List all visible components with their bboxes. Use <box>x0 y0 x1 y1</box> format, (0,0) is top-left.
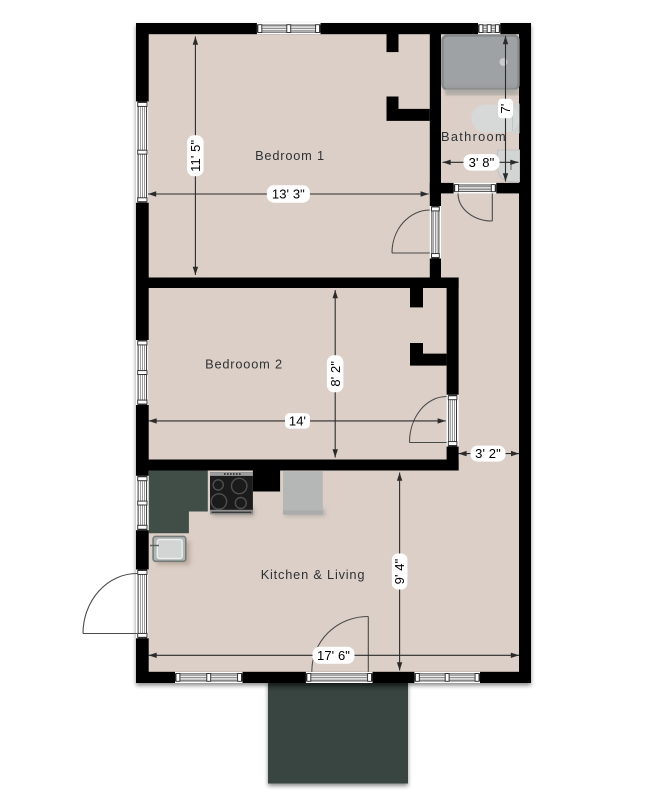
svg-text:7': 7' <box>498 104 513 114</box>
svg-text:Bathroom: Bathroom <box>441 129 507 144</box>
svg-text:Bedroom 1: Bedroom 1 <box>255 148 325 163</box>
svg-text:13' 3": 13' 3" <box>272 187 305 202</box>
svg-text:8' 2": 8' 2" <box>328 361 343 387</box>
svg-text:Bedrooom 2: Bedrooom 2 <box>205 357 283 372</box>
svg-text:3' 8": 3' 8" <box>469 155 495 170</box>
svg-text:14': 14' <box>289 414 306 429</box>
svg-text:17' 6": 17' 6" <box>317 648 350 663</box>
svg-text:9' 4": 9' 4" <box>392 558 407 584</box>
svg-text:3' 2": 3' 2" <box>475 446 501 461</box>
svg-text:Kitchen & Living: Kitchen & Living <box>261 567 366 582</box>
svg-text:11' 5": 11' 5" <box>188 140 203 172</box>
